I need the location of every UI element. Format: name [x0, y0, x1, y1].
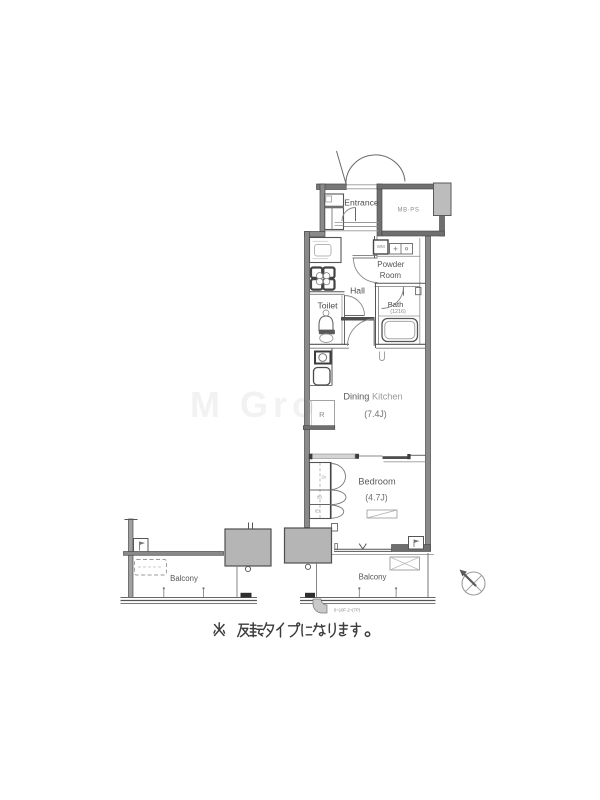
svg-text:(1216): (1216): [390, 309, 406, 315]
svg-text:tEi.: tEi.: [315, 509, 321, 514]
svg-text:Toilet: Toilet: [317, 301, 338, 311]
svg-text:MB·PS: MB·PS: [397, 208, 419, 214]
svg-text:tEi.: tEi.: [317, 495, 323, 500]
svg-text:Balcony: Balcony: [359, 573, 387, 582]
svg-text:Dining Kitchen: Dining Kitchen: [343, 392, 402, 402]
svg-text:R: R: [319, 410, 325, 419]
svg-text:M Gro: M Gro: [190, 384, 319, 425]
svg-text:Bath: Bath: [388, 300, 404, 309]
svg-text:Balcony: Balcony: [170, 574, 198, 583]
svg-text:(7.4J): (7.4J): [364, 409, 387, 419]
svg-text:Hall: Hall: [350, 286, 365, 296]
svg-text:Powder: Powder: [377, 260, 404, 269]
svg-text:6~10F·2~(7P): 6~10F·2~(7P): [334, 608, 361, 613]
svg-text:Entrance: Entrance: [344, 197, 379, 207]
svg-text:(4.7J): (4.7J): [365, 493, 388, 503]
svg-text:WM: WM: [377, 244, 385, 249]
svg-text:Room: Room: [380, 271, 402, 280]
svg-text:Bedroom: Bedroom: [358, 476, 396, 486]
